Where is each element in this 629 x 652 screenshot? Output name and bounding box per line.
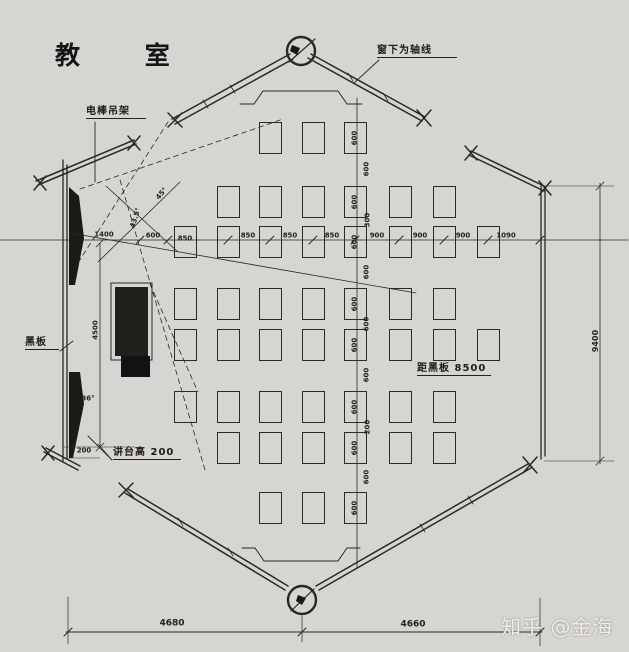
desk [433,288,456,320]
desk [433,186,456,218]
dim-line-bottom [64,597,544,646]
dimension-label: 900 [456,233,471,240]
desk [217,391,240,423]
page-title: 教 室 [55,36,198,72]
dim-line-right-9400 [544,182,614,465]
desk [389,432,412,464]
desk [217,186,240,218]
desk [259,432,282,464]
dimension-label: 1090 [496,233,515,240]
desk [389,288,412,320]
dimension-label: 200 [77,448,92,455]
desk [302,122,325,154]
desk [389,391,412,423]
desk [302,432,325,464]
desk [259,329,282,361]
dimension-label: 600 [352,131,359,146]
dimension-label: 4660 [400,621,425,630]
wall-corner-top-left [34,136,140,190]
dimension-label: 600 [352,441,359,456]
desk [217,329,240,361]
desk [217,288,240,320]
desk [477,329,500,361]
platform-height-label: 讲台高 200 [113,447,181,460]
desk [433,391,456,423]
desk [302,492,325,524]
column-bottom-circle [288,586,316,614]
dimension-label: 600 [364,162,371,177]
dimension-label: 600 [364,470,371,485]
desk [259,492,282,524]
column-top-circle [287,37,315,65]
desk [302,391,325,423]
desk [174,391,197,423]
dimension-label: 600 [352,400,359,415]
desk [174,288,197,320]
desk [259,288,282,320]
desk [302,288,325,320]
dimension-label: 900 [370,233,385,240]
dimension-label: 850 [283,233,298,240]
blackboard-label: 黑板 [25,337,59,350]
interior-notch-lines [240,91,362,561]
wall-top-right [308,54,431,126]
dimension-label: 9400 [592,330,600,352]
desk [389,226,412,258]
dimension-label: 200 [365,420,372,435]
wall-right [541,186,545,459]
dimension-label: 600 [352,338,359,353]
desk [389,329,412,361]
desk [217,226,240,258]
blackboard-shape [69,187,84,458]
dimension-label: 300 [365,213,372,228]
wall-left [63,160,67,461]
desk [217,432,240,464]
dimension-label: 600 [146,233,161,240]
dimension-label: 900 [413,233,428,240]
dimension-label: 600 [352,195,359,210]
dimension-label: 600 [352,235,359,250]
light-rack-label: 电棒吊架 [86,106,146,119]
desk [302,329,325,361]
window-axis-label: 窗下为轴线 [377,45,457,58]
dimension-label: 600 [364,317,371,332]
dimension-label: 600 [352,297,359,312]
dimension-label: 600 [364,265,371,280]
dimension-label: 850 [241,233,256,240]
desk [302,226,325,258]
dimension-label: 36° [81,396,94,403]
desk [302,186,325,218]
dimension-label: 1400 [94,232,113,239]
dimension-label: 850 [325,233,340,240]
desk [174,329,197,361]
dimension-label: 600 [364,368,371,383]
dimension-label: 850 [178,236,193,243]
dimension-label: 4680 [159,620,184,629]
desk [259,391,282,423]
dimension-label: 600 [352,501,359,516]
floor-plan-canvas: 教 室 知乎 @金海 14006008508508508509009009001… [0,0,629,652]
last-row-label: 距黑板 8500 [417,363,491,376]
dimension-label: 4500 [93,320,100,339]
wall-corner-top-right [465,146,551,195]
desk [433,432,456,464]
platform-shape [111,283,152,377]
desk [433,226,456,258]
desk [389,186,412,218]
zhihu-watermark: 知乎 @金海 [501,611,613,640]
desk [259,226,282,258]
desk [259,122,282,154]
desk [433,329,456,361]
desk [259,186,282,218]
